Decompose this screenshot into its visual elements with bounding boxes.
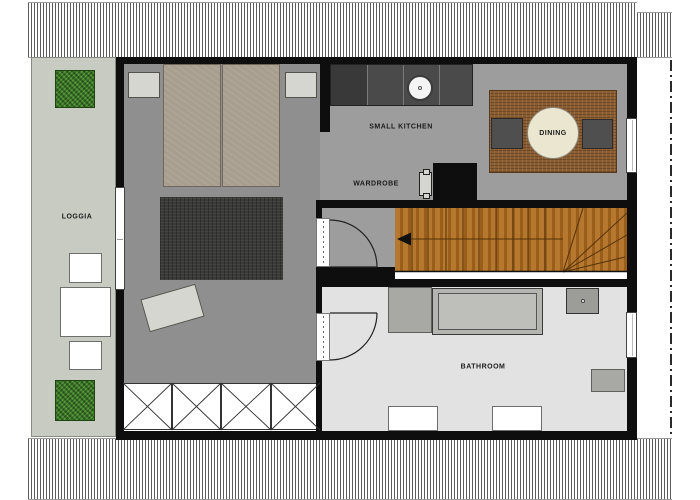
wall-east-mid (627, 173, 637, 312)
radiator-valve (423, 193, 430, 199)
bed-mattress-left (163, 64, 221, 187)
nightstand-right (285, 72, 317, 98)
wall-landing-south (316, 267, 395, 287)
section-line (670, 60, 672, 437)
kitchen-counter (330, 64, 473, 106)
wall-west-upper (116, 57, 124, 187)
roof-hatch-bottom (28, 438, 672, 500)
floor-plan: DINING (0, 0, 700, 500)
bathroom-label: BATHROOM (461, 364, 506, 371)
bathtub-basin (438, 293, 537, 330)
window-east-bathroom (626, 312, 637, 358)
wall-east-lower (627, 358, 637, 432)
kitchen-cabinet (331, 65, 367, 105)
storage-box (271, 383, 320, 430)
window-east-dining (626, 118, 637, 173)
dining-table: DINING (527, 107, 579, 159)
sink-drain (418, 86, 422, 90)
wall-stairs-north (320, 200, 637, 208)
cabinet-divider (403, 65, 404, 105)
radiator-valve (423, 169, 430, 175)
wall-bedroom-bath-lower (316, 361, 322, 432)
outdoor-table (60, 287, 111, 337)
knee-wall-window-left (388, 406, 438, 431)
roof-hatch-top-right (637, 12, 672, 58)
nightstand-left (128, 72, 160, 98)
bed-mattress-right (222, 64, 280, 187)
door-panel-line (323, 316, 324, 358)
radiator (419, 172, 432, 196)
wall-north (116, 57, 637, 64)
knee-wall-window-right (492, 406, 542, 431)
wall-bedroom-bath-upper (316, 287, 322, 313)
roof-hatch-top (28, 2, 637, 58)
storage-box (221, 383, 271, 430)
bedroom-rug (160, 197, 283, 280)
storage-box (172, 383, 221, 430)
stairs (395, 208, 627, 272)
bathroom-door (316, 313, 330, 361)
storage-box (123, 383, 172, 430)
bedroom-door (316, 218, 330, 267)
wardrobe-label: WARDROBE (353, 181, 399, 188)
bathroom-vanity (388, 287, 432, 333)
toilet-block (591, 369, 625, 392)
wall-east-upper (627, 57, 637, 118)
bathtub (432, 288, 543, 335)
dining-chair-right (582, 119, 613, 149)
dining-chair-left (491, 118, 523, 149)
planter-top (55, 70, 95, 108)
basin-drain (581, 299, 585, 303)
washbasin (566, 288, 599, 314)
planter-bottom (55, 380, 95, 421)
wall-south (116, 431, 637, 440)
window-divider (632, 314, 633, 356)
wall-stairs-south (395, 279, 637, 287)
window-west (115, 187, 125, 290)
kitchen-sink (407, 75, 433, 101)
cabinet-divider (367, 65, 368, 105)
window-divider (632, 120, 633, 171)
outdoor-chair-bottom (69, 341, 102, 370)
wall-bedroom-kitchen (320, 57, 330, 132)
wall-bedroom-landing-post (316, 200, 322, 218)
loggia-label: LOGGIA (62, 214, 93, 221)
door-panel-line (323, 221, 324, 264)
wall-west-lower (116, 290, 124, 440)
stair-landing-floor (322, 208, 395, 272)
window-divider (117, 239, 123, 240)
kitchen-label: SMALL KITCHEN (369, 124, 433, 131)
dining-label: DINING (539, 130, 567, 137)
outdoor-chair-top (69, 253, 102, 283)
cabinet-divider (439, 65, 440, 105)
